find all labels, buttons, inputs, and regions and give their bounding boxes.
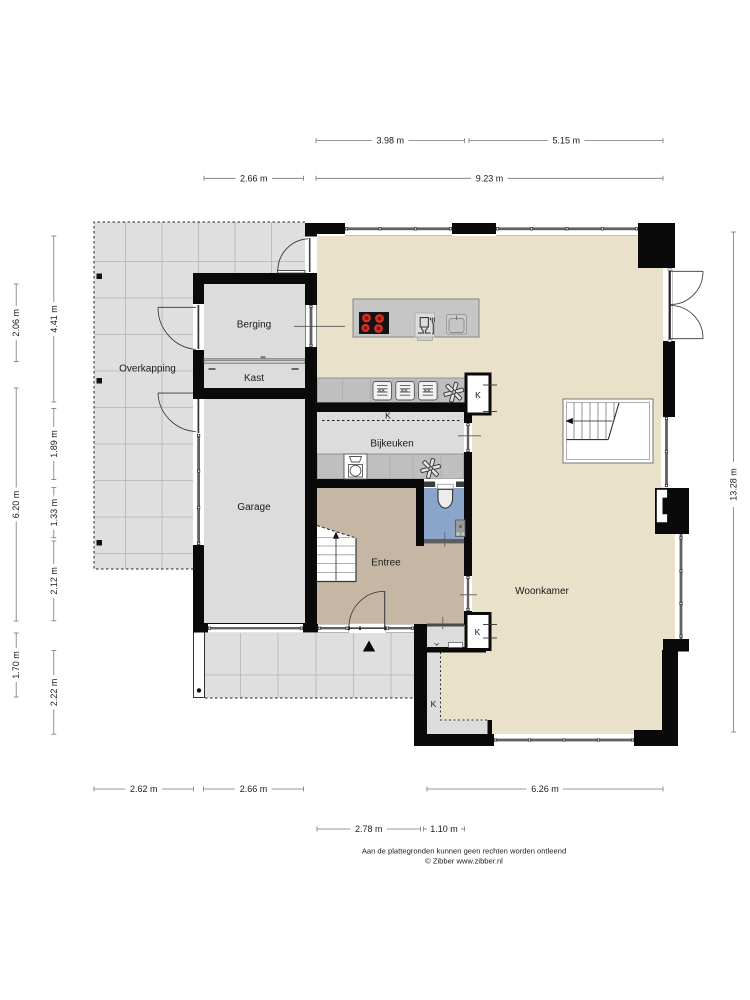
- svg-text:1.89 m: 1.89 m: [49, 430, 59, 458]
- svg-text:2.22 m: 2.22 m: [49, 679, 59, 707]
- svg-text:K: K: [385, 411, 391, 421]
- svg-text:Entree: Entree: [371, 558, 401, 569]
- svg-text:1.10 m: 1.10 m: [430, 824, 458, 834]
- svg-text:Berging: Berging: [237, 320, 271, 331]
- svg-text:Kast: Kast: [244, 373, 264, 384]
- svg-text:6.26 m: 6.26 m: [531, 784, 559, 794]
- svg-text:Woonkamer: Woonkamer: [515, 586, 569, 597]
- svg-text:1.70 m: 1.70 m: [11, 651, 21, 679]
- svg-text:2.78 m: 2.78 m: [355, 824, 383, 834]
- svg-text:4.41 m: 4.41 m: [49, 305, 59, 333]
- svg-text:Bijkeuken: Bijkeuken: [370, 439, 413, 450]
- svg-text:Overkapping: Overkapping: [119, 364, 176, 375]
- svg-text:K: K: [475, 627, 481, 637]
- svg-text:9.23 m: 9.23 m: [476, 173, 504, 183]
- svg-text:3.98 m: 3.98 m: [376, 136, 404, 146]
- svg-text:2.12 m: 2.12 m: [49, 567, 59, 595]
- svg-text:5.15 m: 5.15 m: [552, 136, 580, 146]
- svg-text:K: K: [431, 699, 437, 709]
- svg-text:13.28 m: 13.28 m: [729, 468, 739, 501]
- svg-text:Garage: Garage: [237, 502, 271, 513]
- svg-text:2.06 m: 2.06 m: [11, 309, 21, 337]
- svg-text:2.66 m: 2.66 m: [240, 173, 268, 183]
- svg-text:1.33 m: 1.33 m: [49, 499, 59, 527]
- svg-text:2.62 m: 2.62 m: [130, 784, 158, 794]
- svg-text:6.20 m: 6.20 m: [11, 491, 21, 519]
- svg-text:© Zibber www.zibber.nl: © Zibber www.zibber.nl: [425, 857, 503, 866]
- svg-text:2.66 m: 2.66 m: [240, 784, 268, 794]
- svg-text:K: K: [475, 390, 481, 400]
- svg-text:Aan de plattegronden kunnen ge: Aan de plattegronden kunnen geen rechten…: [362, 847, 566, 856]
